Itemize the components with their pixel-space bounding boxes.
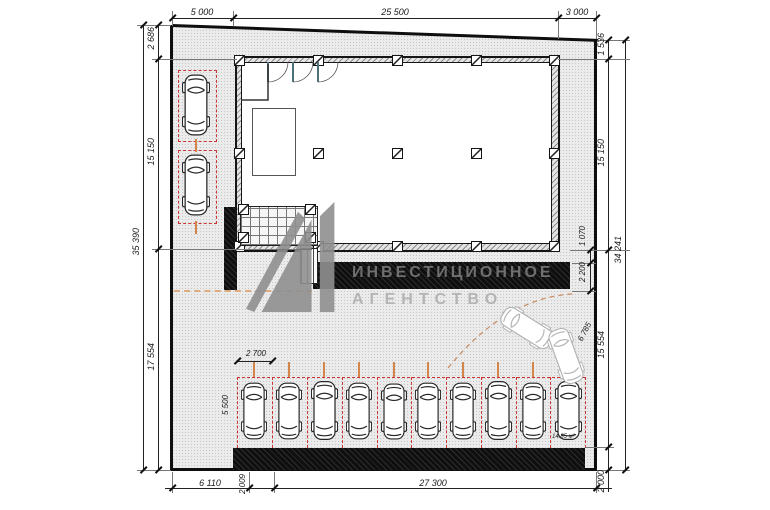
watermark-logo (246, 202, 350, 312)
extension-line (152, 249, 312, 250)
dim-line-right-chain (608, 40, 609, 492)
extension-line (152, 59, 237, 60)
dim-label-top-1: 5 000 (191, 8, 214, 17)
vestibule-partition (241, 64, 268, 100)
dim-label-bottom-2: 2 009 (239, 474, 247, 494)
dim-label-right-2: 15 150 (597, 139, 606, 167)
door-swing-arc (268, 62, 338, 82)
dim-label-right-total: 34 241 (614, 236, 623, 264)
watermark-text-line1: ИНВЕСТИЦИОННОЕ (352, 264, 554, 282)
dim-label-right-1: 1 536 (597, 33, 606, 56)
extension-line (572, 291, 596, 292)
dim-label-stall-width: 2 700 (246, 350, 266, 358)
dim-label-left-total: 35 390 (132, 228, 141, 256)
dim-label-bottom-3: 27 300 (419, 479, 447, 488)
extension-line (274, 472, 275, 493)
turning-path-and-doors-overlay (0, 0, 770, 510)
dim-label-top-2: 25 500 (381, 8, 409, 17)
dim-line-left-total (143, 25, 144, 470)
dim-label-top-3: 3 000 (566, 8, 589, 17)
dim-line-bottom (165, 488, 612, 489)
extension-line (172, 472, 173, 493)
dim-label-right-4: 2 000 (597, 470, 606, 493)
watermark-text-line2: АГЕНТСТВО (352, 291, 503, 309)
extension-line (249, 472, 250, 493)
ghost-car-maneuvering (497, 303, 558, 354)
extension-line (585, 447, 614, 448)
dim-label-stall-depth: 5 500 (222, 395, 230, 415)
dim-line-right-total (625, 40, 626, 470)
site-plan-canvas: ИНВЕСТИЦИОННОЕ АГЕНТСТВО (0, 0, 770, 510)
dim-line-stall-width (237, 361, 272, 362)
extension-line (558, 59, 630, 60)
dim-line-top (172, 18, 596, 19)
dim-label-wall-offset: 1 070 (579, 226, 587, 246)
dim-line-right-local (590, 250, 591, 293)
dim-label-stall-area: 14.85 м² (552, 434, 575, 440)
dim-label-left-2: 15 150 (147, 138, 156, 166)
dim-label-bottom-1: 6 110 (199, 479, 221, 488)
dim-label-left-1: 2 686 (147, 27, 156, 50)
dim-label-left-3: 17 554 (147, 343, 156, 371)
dim-label-wall-height: 2 200 (579, 262, 587, 282)
dim-label-right-3: 15 554 (597, 331, 606, 359)
